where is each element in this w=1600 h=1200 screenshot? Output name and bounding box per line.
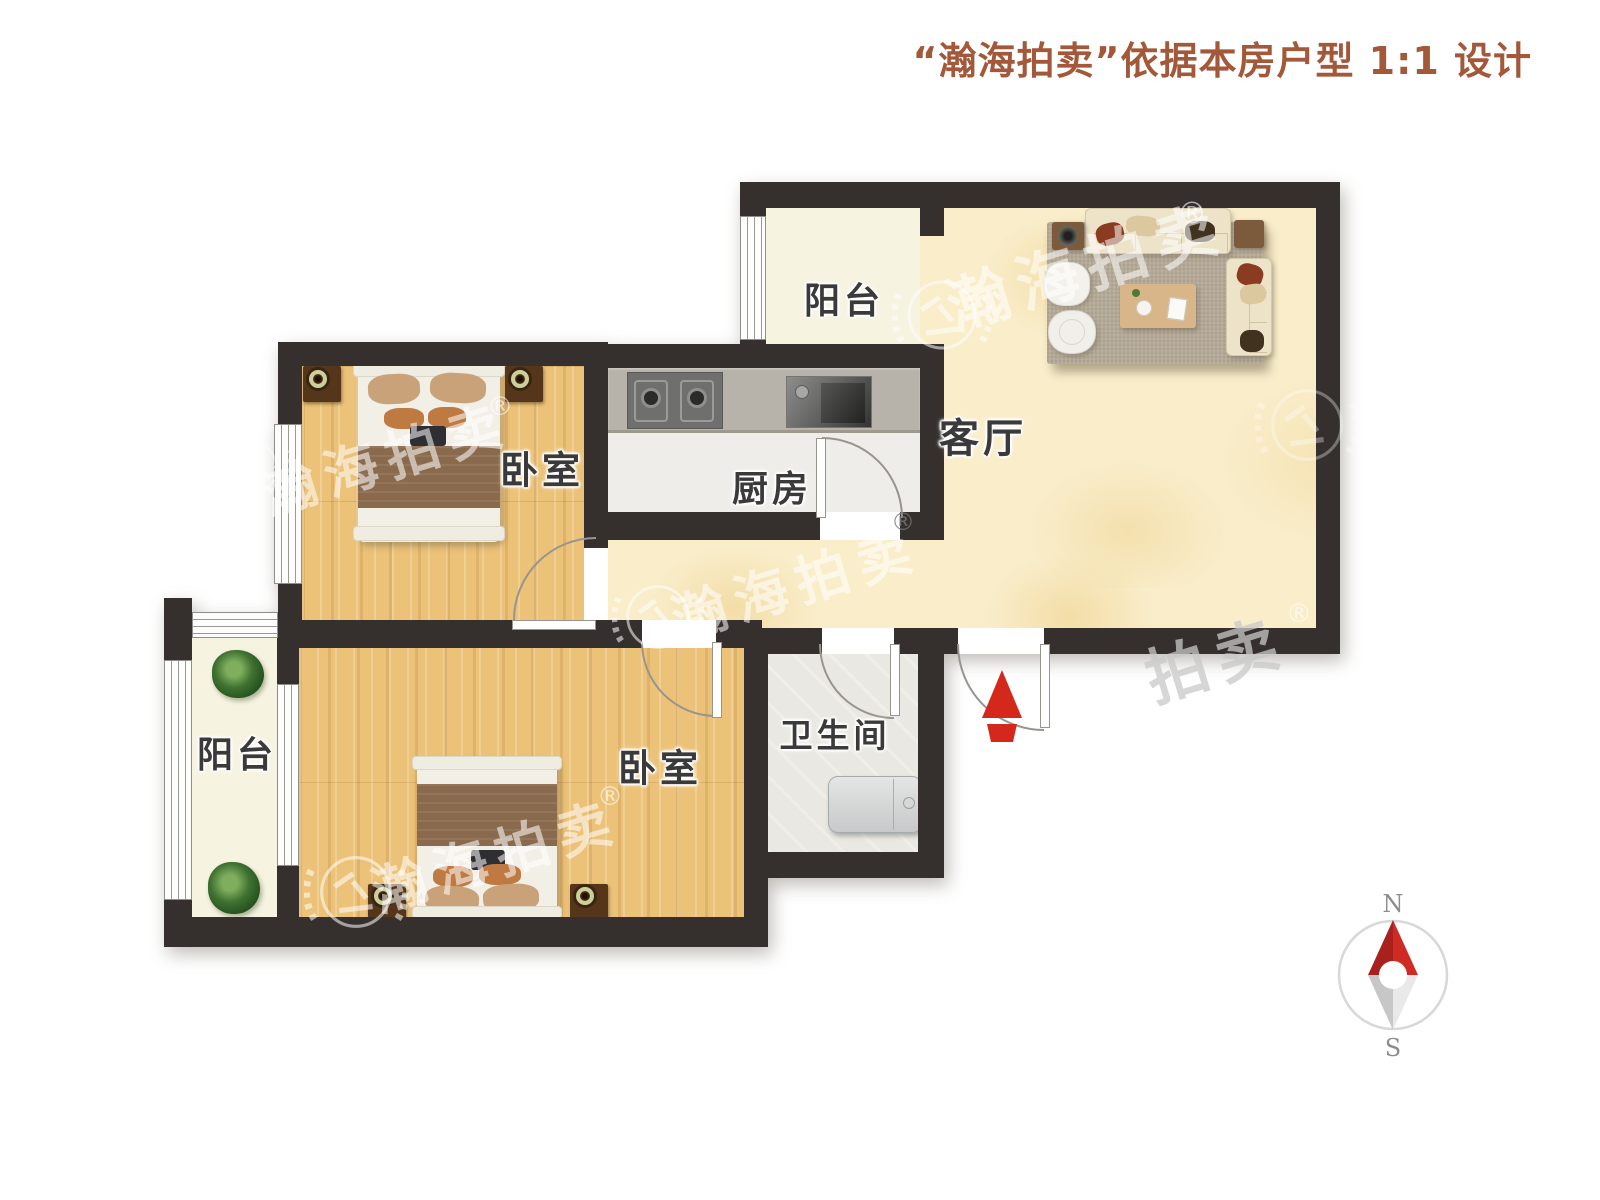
room-label-bedroom-lower: 卧室 [618, 738, 702, 793]
auction-logo-icon [892, 265, 992, 365]
page-title: “瀚海拍卖”依据本房户型 1:1 设计 [913, 30, 1533, 85]
floorplan-canvas: 客厅 阳台 厨房 卧室 卧室 卫生间 阳台 瀚海拍卖 瀚海拍卖 瀚海拍卖 瀚海拍… [0, 0, 1600, 1200]
room-label-living: 客厅 [939, 406, 1027, 464]
door-leaf [816, 438, 826, 518]
registered-mark: ® [1177, 197, 1207, 232]
compass: N S [1325, 880, 1465, 1060]
registered-mark: ® [891, 508, 915, 536]
door-leaf [712, 642, 722, 718]
registered-mark: ® [597, 782, 623, 812]
entrance-arrow-icon [977, 668, 1027, 752]
auction-logo-icon [203, 424, 291, 512]
room-label-kitchen: 厨房 [732, 460, 812, 512]
auction-logo-icon [304, 840, 408, 944]
room-label-balcony-top: 阳台 [804, 272, 884, 324]
room-label-balcony-left: 阳台 [197, 726, 277, 778]
auction-logo-icon [1255, 373, 1359, 477]
door-leaf [512, 620, 596, 630]
auction-logo-icon [612, 571, 704, 663]
registered-mark: ® [1286, 599, 1312, 629]
compass-rose-icon [1325, 880, 1465, 1060]
door-leaf [890, 644, 900, 716]
registered-mark: ® [487, 392, 513, 422]
room-label-bathroom: 卫生间 [780, 709, 891, 757]
compass-south-label: S [1385, 1034, 1401, 1062]
door-leaf [1040, 644, 1050, 728]
